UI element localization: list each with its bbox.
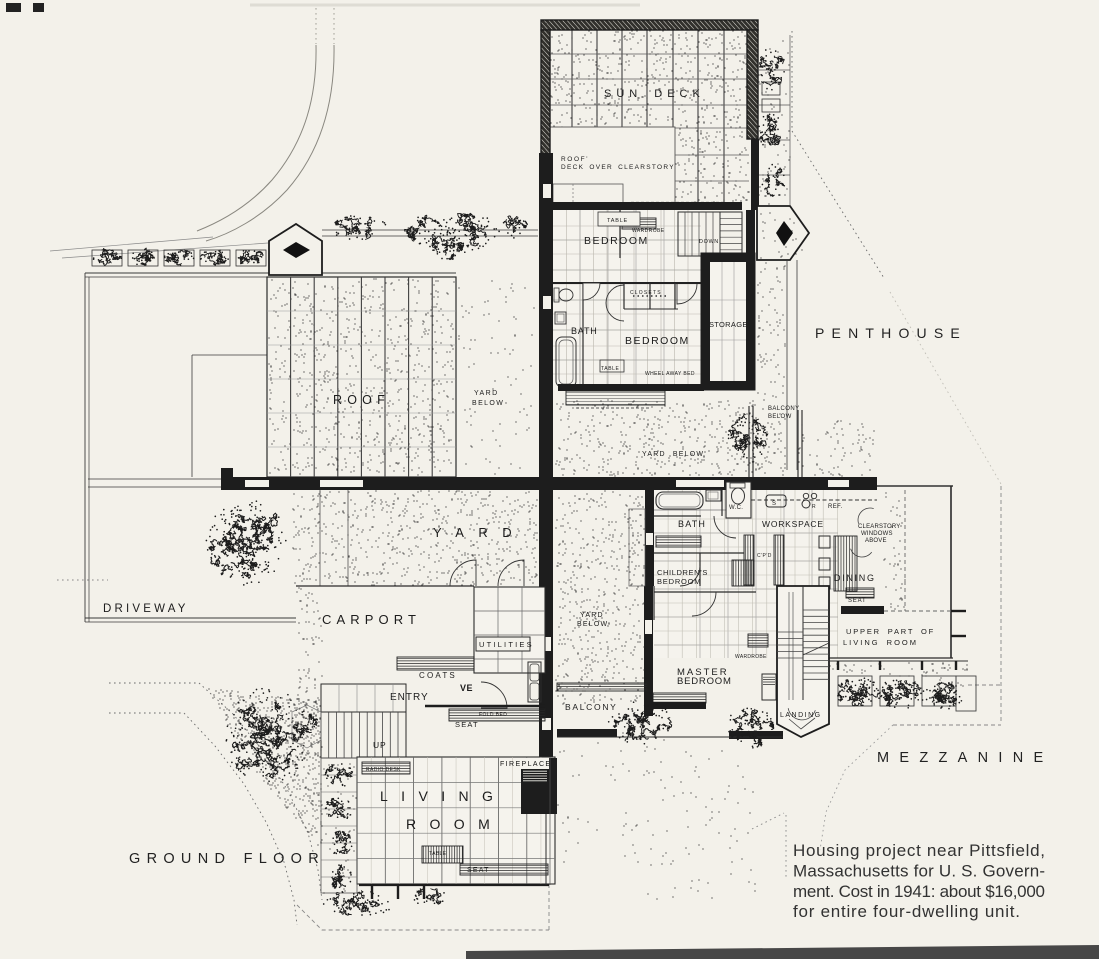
svg-text:ABOVE: ABOVE <box>865 538 887 544</box>
svg-text:UP: UP <box>373 740 386 750</box>
svg-text:LIVING ROOM: LIVING ROOM <box>843 638 918 647</box>
svg-text:WHEEL AWAY BED: WHEEL AWAY BED <box>645 371 695 377</box>
svg-text:BATH: BATH <box>571 326 598 336</box>
svg-text:SEAT: SEAT <box>848 598 866 604</box>
svg-text:Housing project near Pittsfiel: Housing project near Pittsfield, <box>793 841 1045 860</box>
svg-text:W.C.: W.C. <box>729 505 743 511</box>
svg-text:ROOF: ROOF <box>333 393 390 407</box>
svg-text:BATH: BATH <box>678 519 706 529</box>
svg-text:FOLD BED: FOLD BED <box>479 712 507 718</box>
svg-text:TABLE: TABLE <box>601 366 620 372</box>
svg-text:SEAT: SEAT <box>467 867 490 874</box>
svg-text:ROOF’: ROOF’ <box>561 156 589 163</box>
svg-text:CLEARSTORY: CLEARSTORY <box>858 524 900 530</box>
svg-text:R: R <box>812 504 816 510</box>
svg-text:BEDROOM: BEDROOM <box>657 577 701 586</box>
svg-text:YARD: YARD <box>474 390 499 397</box>
svg-text:RADIO DESK: RADIO DESK <box>366 767 401 773</box>
svg-text:DOWN: DOWN <box>699 239 719 245</box>
svg-text:WARDROBE: WARDROBE <box>632 228 665 234</box>
svg-text:WORKSPACE: WORKSPACE <box>762 519 824 529</box>
svg-text:YARD: YARD <box>580 612 604 619</box>
svg-text:YARD: YARD <box>433 525 526 540</box>
svg-text:COATS: COATS <box>419 671 457 680</box>
svg-text:GROUND FLOOR: GROUND FLOOR <box>129 851 325 867</box>
svg-text:BELOW: BELOW <box>472 400 504 407</box>
svg-text:BEDROOM: BEDROOM <box>584 235 649 247</box>
svg-text:BEDROOM: BEDROOM <box>625 335 690 347</box>
svg-text:WARDROBE: WARDROBE <box>735 654 767 660</box>
svg-text:ment. Cost in 1941: about $16,: ment. Cost in 1941: about $16,000 <box>793 882 1045 901</box>
svg-text:Massachusetts for U. S. Govern: Massachusetts for U. S. Govern- <box>793 861 1045 880</box>
svg-text:BELOW: BELOW <box>577 621 608 628</box>
svg-text:ENTRY: ENTRY <box>390 692 429 703</box>
svg-text:REF.: REF. <box>828 504 843 510</box>
svg-text:BALCONY: BALCONY <box>565 702 618 712</box>
svg-text:STORAGE: STORAGE <box>709 320 748 329</box>
svg-text:LANDING: LANDING <box>780 712 822 719</box>
svg-text:ROOM: ROOM <box>406 816 503 832</box>
svg-text:DECK OVER CLEARSTORY: DECK OVER CLEARSTORY <box>561 164 675 171</box>
svg-text:WINDOWS: WINDOWS <box>861 531 893 537</box>
svg-text:CARPORT: CARPORT <box>322 612 421 627</box>
svg-text:S: S <box>772 501 776 507</box>
svg-text:SUN DECK: SUN DECK <box>604 88 705 100</box>
svg-text:C’P’D: C’P’D <box>757 553 772 559</box>
svg-text:DINING: DINING <box>834 573 876 583</box>
svg-text:TABLE: TABLE <box>607 218 628 224</box>
svg-text:CLOSETS: CLOSETS <box>630 290 662 296</box>
svg-text:MEZZANINE: MEZZANINE <box>877 750 1053 766</box>
svg-text:SEAT: SEAT <box>455 720 479 729</box>
svg-text:BELOW: BELOW <box>768 414 792 420</box>
svg-text:BALCONY: BALCONY <box>768 406 799 412</box>
svg-text:VE: VE <box>460 683 473 693</box>
svg-text:UTILITIES: UTILITIES <box>479 640 534 649</box>
svg-text:LIVING: LIVING <box>380 788 506 804</box>
svg-text:TABLE: TABLE <box>429 851 447 857</box>
svg-text:for entire four-dwelling unit.: for entire four-dwelling unit. <box>793 902 1020 921</box>
svg-text:YARD BELOW: YARD BELOW <box>642 451 704 458</box>
svg-text:FIREPLACE: FIREPLACE <box>500 761 552 768</box>
svg-text:DRIVEWAY: DRIVEWAY <box>103 603 189 615</box>
svg-text:PENTHOUSE: PENTHOUSE <box>815 325 967 341</box>
svg-text:BEDROOM: BEDROOM <box>677 676 732 687</box>
svg-text:UPPER PART OF: UPPER PART OF <box>846 627 935 636</box>
